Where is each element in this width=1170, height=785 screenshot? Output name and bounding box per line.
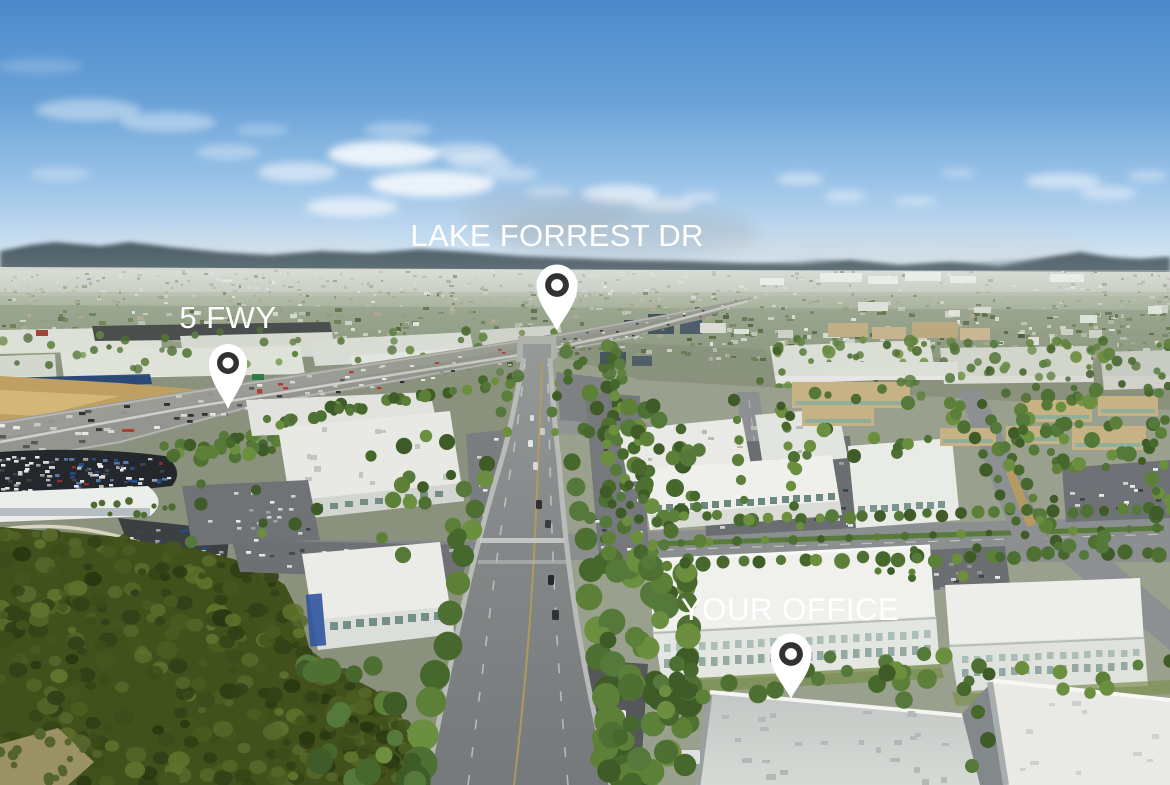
svg-text:YOUR OFFICE: YOUR OFFICE: [681, 591, 900, 627]
svg-text:LAKE FORREST DR: LAKE FORREST DR: [410, 218, 703, 253]
svg-text:5 FWY: 5 FWY: [179, 300, 276, 335]
